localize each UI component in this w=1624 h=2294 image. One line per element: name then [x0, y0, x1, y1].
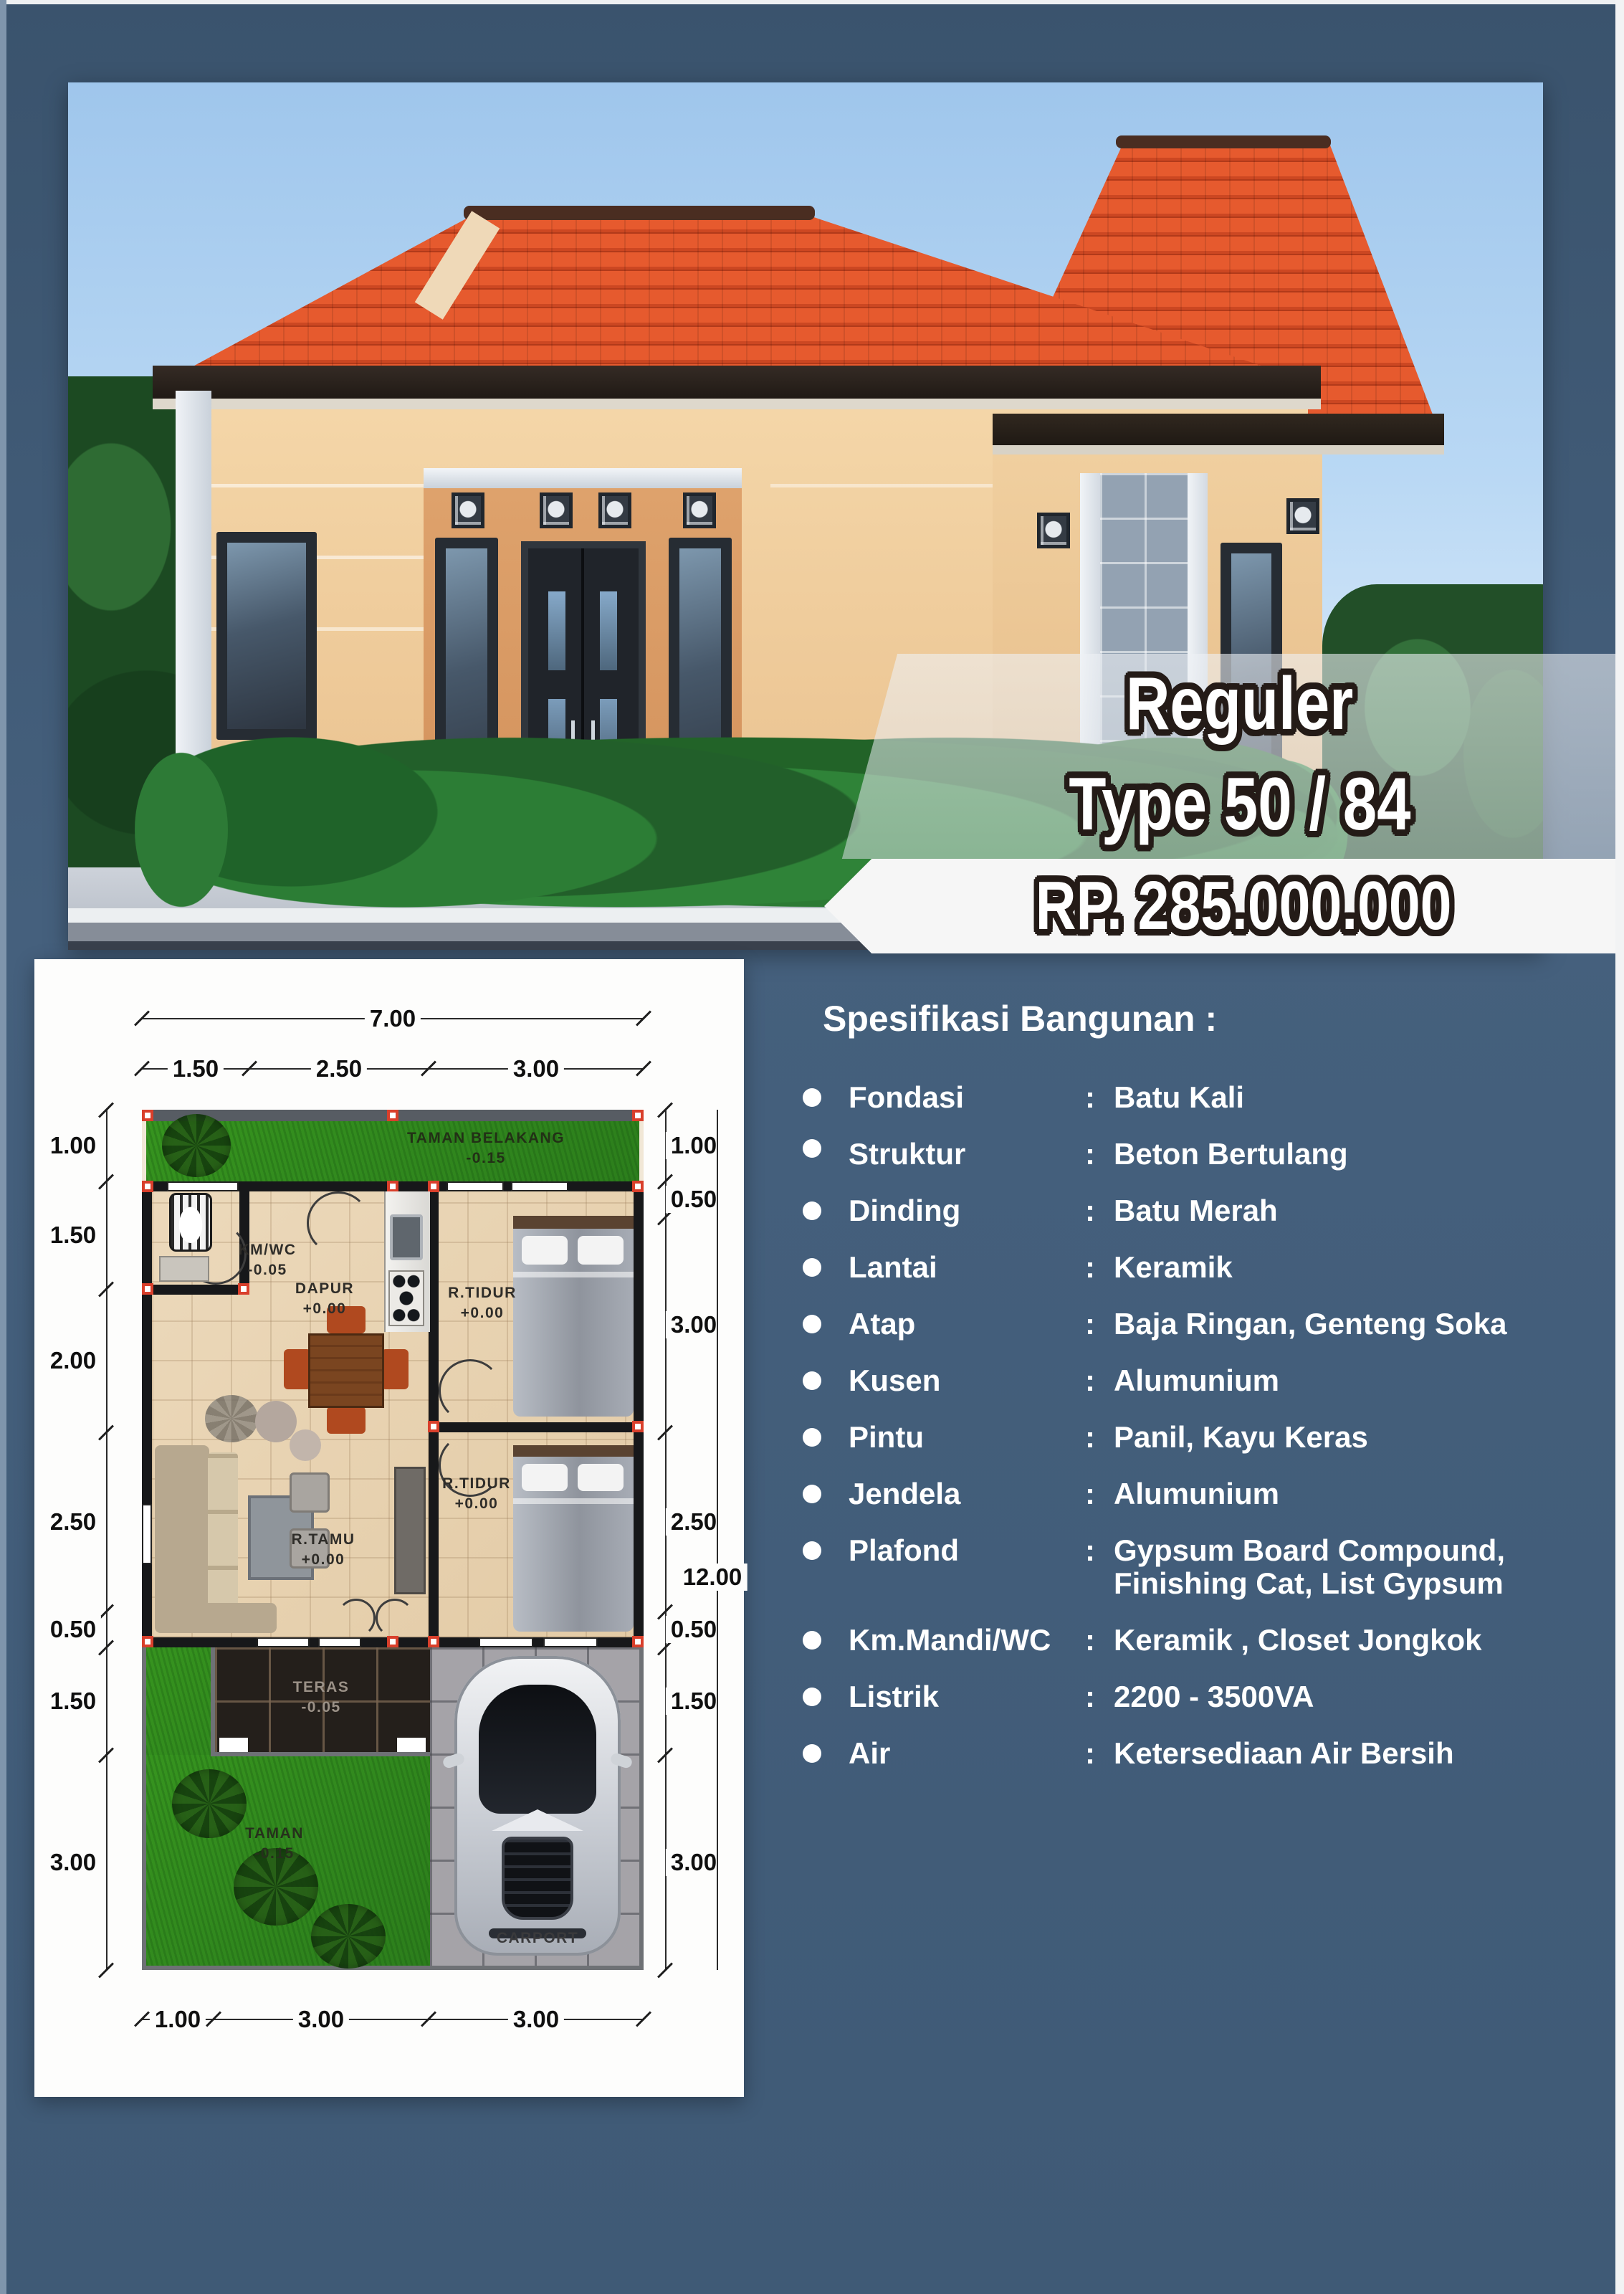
room-label-teras: TERAS -0.05: [267, 1677, 375, 1718]
armchair: [290, 1472, 330, 1513]
bullet-icon: [803, 1258, 821, 1277]
fascia-right-wing: [993, 414, 1444, 445]
dim-left: 0.50: [45, 1616, 101, 1643]
dim-line-right: [665, 1110, 667, 1970]
kitchen-sink: [390, 1214, 423, 1260]
spec-row-kusen: Kusen : Alumunium: [803, 1364, 1602, 1397]
spec-colon: :: [1085, 1421, 1114, 1454]
spec-row-fondasi: Fondasi : Batu Kali: [803, 1081, 1602, 1114]
dim-right: 3.00: [666, 1849, 722, 1876]
bullet-icon: [803, 1315, 821, 1333]
kitchen-stove: [388, 1270, 424, 1326]
spec-value: Panil, Kayu Keras: [1114, 1421, 1602, 1454]
spec-value: Beton Bertulang: [1114, 1138, 1602, 1171]
spec-label: Listrik: [849, 1680, 1085, 1713]
plant: [311, 1904, 386, 1969]
door-arc-bedroom1: [439, 1359, 502, 1422]
dining-chair: [327, 1407, 366, 1434]
wall-bedrooms: [429, 1181, 439, 1647]
porch-beam: [424, 468, 742, 488]
plan-window: [511, 1181, 568, 1191]
wall-right: [634, 1181, 644, 1647]
spec-row-lantai: Lantai : Keramik: [803, 1251, 1602, 1284]
dim-right-total: 12.00: [678, 1564, 747, 1591]
column-marker: [142, 1636, 153, 1647]
dim-bottom: 3.00: [293, 2006, 349, 2033]
spec-label: Struktur: [849, 1138, 1085, 1171]
bullet-icon: [803, 1139, 821, 1158]
spec-label: Fondasi: [849, 1081, 1085, 1114]
gutter-main: [153, 399, 1321, 409]
dim-right: 1.00: [666, 1132, 722, 1159]
dining-table: [308, 1333, 384, 1408]
plan-window: [479, 1637, 533, 1647]
spec-label: Lantai: [849, 1251, 1085, 1284]
plan-window: [257, 1637, 310, 1647]
room-label-taman-belakang: TAMAN BELAKANG -0.15: [378, 1128, 593, 1169]
spec-value: 2200 - 3500VA: [1114, 1680, 1602, 1713]
spec-row-listrik: Listrik : 2200 - 3500VA: [803, 1680, 1602, 1713]
spec-row-jendela: Jendela : Alumunium: [803, 1477, 1602, 1510]
spec-label: Km.Mandi/WC: [849, 1624, 1085, 1657]
door-arc-front-right: [376, 1599, 414, 1637]
spec-value-line1: Gypsum Board Compound,: [1114, 1534, 1602, 1567]
bullet-icon: [803, 1541, 821, 1560]
sofa-cushions: [208, 1452, 238, 1622]
spec-row-struktur: Struktur : Beton Bertulang: [803, 1138, 1602, 1171]
spec-colon: :: [1085, 1251, 1114, 1284]
curb-line: [211, 1752, 430, 1756]
column-marker: [632, 1181, 644, 1192]
column-marker: [387, 1636, 398, 1647]
spec-colon: :: [1085, 1624, 1114, 1657]
page-edge-right: [1615, 0, 1624, 2294]
column-marker: [142, 1110, 153, 1121]
vent-ornament: [540, 492, 573, 528]
dim-left: 3.00: [45, 1849, 101, 1876]
dim-top-seg: 1.50: [168, 1055, 224, 1082]
specifications: Spesifikasi Bangunan : Fondasi : Batu Ka…: [803, 998, 1602, 1794]
spec-value: Alumunium: [1114, 1477, 1602, 1510]
wall-bedroom-divider: [429, 1422, 644, 1432]
car-engine-vent: [502, 1837, 573, 1920]
bullet-icon: [803, 1201, 821, 1220]
plant: [162, 1114, 231, 1177]
spec-colon: :: [1085, 1081, 1114, 1114]
spec-label: Kusen: [849, 1364, 1085, 1397]
fascia-main: [153, 366, 1321, 399]
sofa-back: [155, 1445, 209, 1627]
dim-right: 0.50: [666, 1616, 722, 1643]
vent-ornament: [598, 492, 631, 528]
column-marker: [632, 1110, 644, 1121]
dim-right: 3.00: [666, 1311, 722, 1338]
bullet-icon: [803, 1631, 821, 1650]
spec-colon: :: [1085, 1194, 1114, 1227]
spec-value: Batu Kali: [1114, 1081, 1602, 1114]
spec-label: Dinding: [849, 1194, 1085, 1227]
pouf: [290, 1429, 321, 1461]
brochure-page: Reguler Type 50 / 84 RP. 285.000.000 7.0…: [0, 0, 1624, 2294]
room-label-carport: CARPORT: [480, 1928, 595, 1948]
spec-value: Ketersediaan Air Bersih: [1114, 1737, 1602, 1770]
plan-window: [167, 1181, 239, 1191]
door-glass: [548, 591, 565, 670]
gutter-right-wing: [993, 445, 1444, 454]
bed-pillow: [578, 1236, 624, 1265]
vent-ornament: [1037, 513, 1070, 548]
spec-row-atap: Atap : Baja Ringan, Genteng Soka: [803, 1308, 1602, 1341]
shower-tray: [159, 1256, 209, 1282]
spec-value-line2: Finishing Cat, List Gypsum: [1114, 1567, 1602, 1600]
spec-label: Pintu: [849, 1421, 1085, 1454]
wall-left: [142, 1181, 152, 1647]
page-edge-left: [0, 0, 6, 2294]
dining-chair: [381, 1349, 409, 1389]
badge-series: Reguler: [1126, 654, 1354, 754]
dim-top-seg: 2.50: [311, 1055, 367, 1082]
bullet-icon: [803, 1744, 821, 1763]
plan-window: [446, 1181, 504, 1191]
badge-type: Type 50 / 84: [1069, 754, 1410, 855]
room-label-bedroom1: R.TIDUR +0.00: [429, 1283, 536, 1323]
plan-window: [318, 1637, 361, 1647]
bullet-icon: [803, 1371, 821, 1390]
room-label-taman: TAMAN -0.15: [221, 1824, 328, 1864]
spec-label: Jendela: [849, 1477, 1085, 1510]
bed-blanket-fold: [513, 1272, 634, 1277]
dim-top-total: 7.00: [365, 1005, 421, 1032]
plan-window: [142, 1504, 152, 1564]
room-label-rtamu: R.TAMU +0.00: [269, 1530, 377, 1570]
teras-step: [397, 1738, 426, 1752]
spec-row-air: Air : Ketersediaan Air Bersih: [803, 1737, 1602, 1770]
column-marker: [387, 1181, 398, 1192]
window-left-wing: [216, 532, 317, 740]
door-arc-front-left: [337, 1599, 376, 1637]
spec-value: Alumunium: [1114, 1364, 1602, 1397]
spec-colon: :: [1085, 1308, 1114, 1341]
floorplan-drawing: TAMAN BELAKANG -0.15 KM/WC -0.05 DAPUR +…: [142, 1110, 644, 1970]
spec-row-dinding: Dinding : Batu Merah: [803, 1194, 1602, 1227]
wall-kmwc-bottom: [142, 1285, 249, 1295]
spec-value: Baja Ringan, Genteng Soka: [1114, 1308, 1602, 1341]
bullet-icon: [803, 1088, 821, 1107]
spec-colon: :: [1085, 1680, 1114, 1713]
page-edge-top: [0, 0, 1624, 4]
floorplan-panel: 7.00 1.50 2.50 3.00 1.00 1.50 2.00 2.50 …: [34, 959, 744, 2097]
price-banner: RP. 285.000.000: [824, 859, 1615, 953]
dim-line-bottom: [142, 2019, 644, 2020]
dim-line-right-total: [717, 1110, 718, 1970]
bullet-icon: [803, 1428, 821, 1447]
spec-colon: :: [1085, 1364, 1114, 1397]
type-badge: Reguler Type 50 / 84: [835, 654, 1615, 859]
bullet-icon: [803, 1688, 821, 1706]
room-label-kmwc: KM/WC -0.05: [214, 1240, 321, 1280]
column-marker: [428, 1636, 439, 1647]
dim-right: 2.50: [666, 1508, 722, 1536]
bed-headboard: [513, 1445, 634, 1457]
sofa-chaise: [155, 1603, 277, 1633]
specs-title: Spesifikasi Bangunan :: [823, 998, 1602, 1039]
spec-colon: :: [1085, 1477, 1114, 1510]
spec-row-pintu: Pintu : Panil, Kayu Keras: [803, 1421, 1602, 1454]
spec-value: Gypsum Board Compound, Finishing Cat, Li…: [1114, 1534, 1602, 1600]
spec-value: Keramik: [1114, 1251, 1602, 1284]
roof-ridge-right: [1116, 135, 1331, 148]
dim-left: 1.50: [45, 1688, 101, 1715]
teras-step: [219, 1738, 248, 1752]
dim-bottom: 1.00: [150, 2006, 206, 2033]
spec-row-kmmandi: Km.Mandi/WC : Keramik , Closet Jongkok: [803, 1624, 1602, 1657]
squat-toilet: [169, 1193, 212, 1252]
dim-top-seg: 3.00: [508, 1055, 564, 1082]
dim-bottom: 3.00: [508, 2006, 564, 2033]
bullet-icon: [803, 1485, 821, 1503]
dim-line-left: [106, 1110, 108, 1970]
dim-left: 2.50: [45, 1508, 101, 1536]
column-marker: [238, 1283, 249, 1295]
bed-headboard: [513, 1216, 634, 1229]
vent-ornament: [1286, 498, 1319, 534]
dining-chair: [284, 1349, 311, 1389]
roof-ridge-main: [464, 206, 815, 220]
spec-value: Batu Merah: [1114, 1194, 1602, 1227]
spec-colon: :: [1085, 1138, 1114, 1171]
bed-blanket-fold: [513, 1498, 634, 1504]
column-marker: [632, 1636, 644, 1647]
decor-plant: [205, 1395, 258, 1442]
bed-pillow: [522, 1236, 568, 1265]
dim-right: 1.50: [666, 1688, 722, 1715]
spec-row-plafond: Plafond : Gypsum Board Compound, Finishi…: [803, 1534, 1602, 1600]
dim-right: 0.50: [666, 1186, 722, 1213]
column-marker: [632, 1421, 644, 1432]
car-cabin-glass: [479, 1685, 596, 1814]
dim-left: 1.00: [45, 1132, 101, 1159]
column-marker: [142, 1181, 153, 1192]
tv-cabinet: [394, 1467, 426, 1594]
spec-label: Plafond: [849, 1534, 1085, 1600]
column-marker: [428, 1421, 439, 1432]
pouf: [255, 1401, 297, 1442]
curb-line: [211, 1647, 215, 1755]
column-marker: [142, 1283, 153, 1295]
bed-pillow: [578, 1464, 624, 1491]
plan-window: [543, 1637, 598, 1647]
spec-label: Air: [849, 1737, 1085, 1770]
spec-label: Atap: [849, 1308, 1085, 1341]
dim-left: 1.50: [45, 1222, 101, 1249]
room-label-dapur: DAPUR +0.00: [271, 1279, 378, 1319]
vent-ornament: [452, 492, 484, 528]
vent-ornament: [683, 492, 716, 528]
spec-colon: :: [1085, 1737, 1114, 1770]
dim-left: 2.00: [45, 1347, 101, 1374]
room-label-bedroom2: R.TIDUR +0.00: [423, 1474, 530, 1514]
price-text: RP. 285.000.000: [1036, 859, 1452, 953]
spec-colon: :: [1085, 1534, 1114, 1600]
car-top-view: [454, 1656, 621, 1956]
spec-value: Keramik , Closet Jongkok: [1114, 1624, 1602, 1657]
column-marker: [428, 1181, 439, 1192]
door-glass: [600, 591, 617, 670]
column-marker: [387, 1110, 398, 1121]
